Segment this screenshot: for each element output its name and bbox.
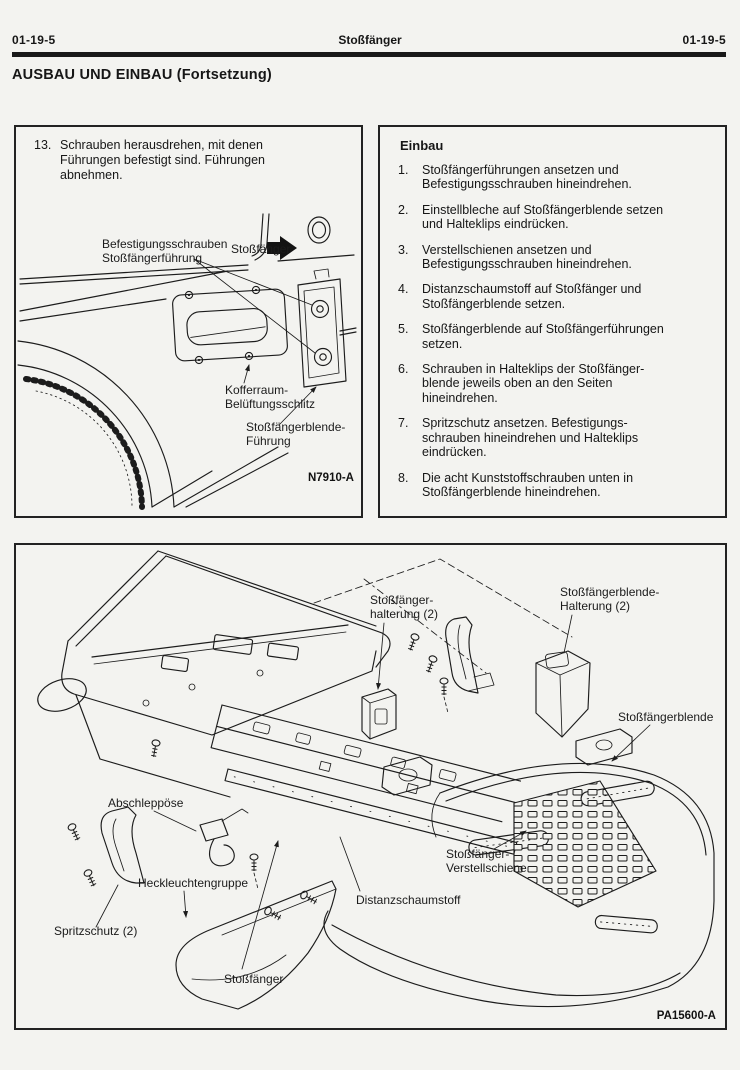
label-cover-guide-line2: Führung xyxy=(246,434,291,448)
step-text: Einstellbleche auf Stoßfängerblende setz… xyxy=(422,203,663,232)
removal-step: 13. Schrauben herausdrehen, mit denen Fü… xyxy=(34,138,265,182)
step-text: Die acht Kunststoffschrauben unten in St… xyxy=(422,471,633,500)
adjust-rail-grid xyxy=(514,781,656,907)
label-bumper-bracket-line2: halterung (2) xyxy=(370,607,438,621)
install-step: 3.Verstellschienen ansetzen und Befestig… xyxy=(398,243,713,272)
install-step: 5.Stoßfängerblende auf Stoßfängerführung… xyxy=(398,322,713,351)
figure-code: N7910-A xyxy=(308,472,354,484)
label-cover: Stoßfängerblende xyxy=(618,710,714,724)
manual-page: 01-19-5 Stoßfänger 01-19-5 AUSBAU UND EI… xyxy=(0,0,740,1070)
step-number: 7. xyxy=(398,416,422,459)
trunk-vent-slot xyxy=(172,286,288,363)
bumper-cover xyxy=(324,763,714,1006)
step-number: 13. xyxy=(34,138,60,182)
step-number: 3. xyxy=(398,243,422,272)
bumper-bracket xyxy=(362,689,396,739)
label-cover-bracket-line1: Stoßfängerblende- xyxy=(560,585,659,599)
step-number: 5. xyxy=(398,322,422,351)
install-step: 6.Schrauben in Halteklips der Stoßfänger… xyxy=(398,362,713,405)
page-title: Stoßfänger xyxy=(0,33,740,47)
install-step: 2.Einstellbleche auf Stoßfängerblende se… xyxy=(398,203,713,232)
step-number: 1. xyxy=(398,163,422,192)
label-foam: Distanzschaumstoff xyxy=(356,893,461,907)
label-splash-shield: Spritzschutz (2) xyxy=(54,924,137,938)
label-adjust-rail-line1: Stoßfänger- xyxy=(446,847,509,861)
step-text: Verstellschienen ansetzen und Befestigun… xyxy=(422,243,632,272)
step-number: 6. xyxy=(398,362,422,405)
header-rule xyxy=(12,52,726,57)
grommet xyxy=(308,217,330,243)
removal-panel: 13. Schrauben herausdrehen, mit denen Fü… xyxy=(14,125,363,518)
label-bumper-bracket-line1: Stoßfänger- xyxy=(370,593,433,607)
label-cover-bracket-line2: Halterung (2) xyxy=(560,599,630,613)
step-text: Spritzschutz ansetzen. Befestigungs- sch… xyxy=(422,416,638,459)
splash-shield xyxy=(67,807,144,887)
car-rear-body xyxy=(34,551,390,797)
section-title: AUSBAU UND EINBAU (Fortsetzung) xyxy=(12,67,272,83)
install-steps: 1.Stoßfängerführungen ansetzen und Befes… xyxy=(398,163,713,510)
step-text: Schrauben herausdrehen, mit denen Führun… xyxy=(60,138,265,182)
step-text: Stoßfängerblende auf Stoßfängerführungen… xyxy=(422,322,664,351)
cover-guide-bracket xyxy=(298,269,356,387)
label-bumper: Stoßfänger xyxy=(231,242,290,256)
step-text: Stoßfängerführungen ansetzen und Befesti… xyxy=(422,163,632,192)
step-number: 8. xyxy=(398,471,422,500)
step-number: 4. xyxy=(398,282,422,311)
label-adjust-rail-line2: Verstellschiene xyxy=(446,861,527,875)
label-fastening-screws-line2: Stoßfängerführung xyxy=(102,251,202,265)
cover-corner-bracket xyxy=(536,651,590,737)
step-number: 2. xyxy=(398,203,422,232)
label-tail-lamp: Heckleuchtengruppe xyxy=(138,876,248,890)
step-text: Distanzschaumstoff auf Stoßfänger und St… xyxy=(422,282,641,311)
install-step: 7.Spritzschutz ansetzen. Befestigungs- s… xyxy=(398,416,713,459)
figure-code: PA15600-A xyxy=(657,1010,716,1022)
exploded-figure: Stoßfänger- halterung (2) Stoßfängerblen… xyxy=(16,545,721,1024)
install-step: 8.Die acht Kunststoffschrauben unten in … xyxy=(398,471,713,500)
label-bumper: Stoßfänger xyxy=(224,972,283,986)
install-title: Einbau xyxy=(400,138,443,153)
install-step: 4.Distanzschaumstoff auf Stoßfänger und … xyxy=(398,282,713,311)
removal-figure: Befestigungsschrauben Stoßfängerführung … xyxy=(16,213,357,511)
label-tow-hook: Abschleppöse xyxy=(108,796,184,810)
install-panel: Einbau 1.Stoßfängerführungen ansetzen un… xyxy=(378,125,727,518)
label-trunk-vent-line1: Kofferraum- xyxy=(225,383,288,397)
loose-screws xyxy=(150,633,448,871)
label-fastening-screws-line1: Befestigungsschrauben xyxy=(102,237,227,251)
label-cover-guide-line1: Stoßfängerblende- xyxy=(246,420,345,434)
page-number-right: 01-19-5 xyxy=(683,33,726,47)
tail-lamp xyxy=(176,881,336,1009)
exploded-panel: Stoßfänger- halterung (2) Stoßfängerblen… xyxy=(14,543,727,1030)
step-text: Schrauben in Halteklips der Stoßfänger- … xyxy=(422,362,644,405)
cover-bracket-strap xyxy=(446,617,494,693)
label-trunk-vent-line2: Belüftungsschlitz xyxy=(225,397,315,411)
install-step: 1.Stoßfängerführungen ansetzen und Befes… xyxy=(398,163,713,192)
bumper-bar xyxy=(211,705,520,824)
tow-hook xyxy=(200,809,248,866)
